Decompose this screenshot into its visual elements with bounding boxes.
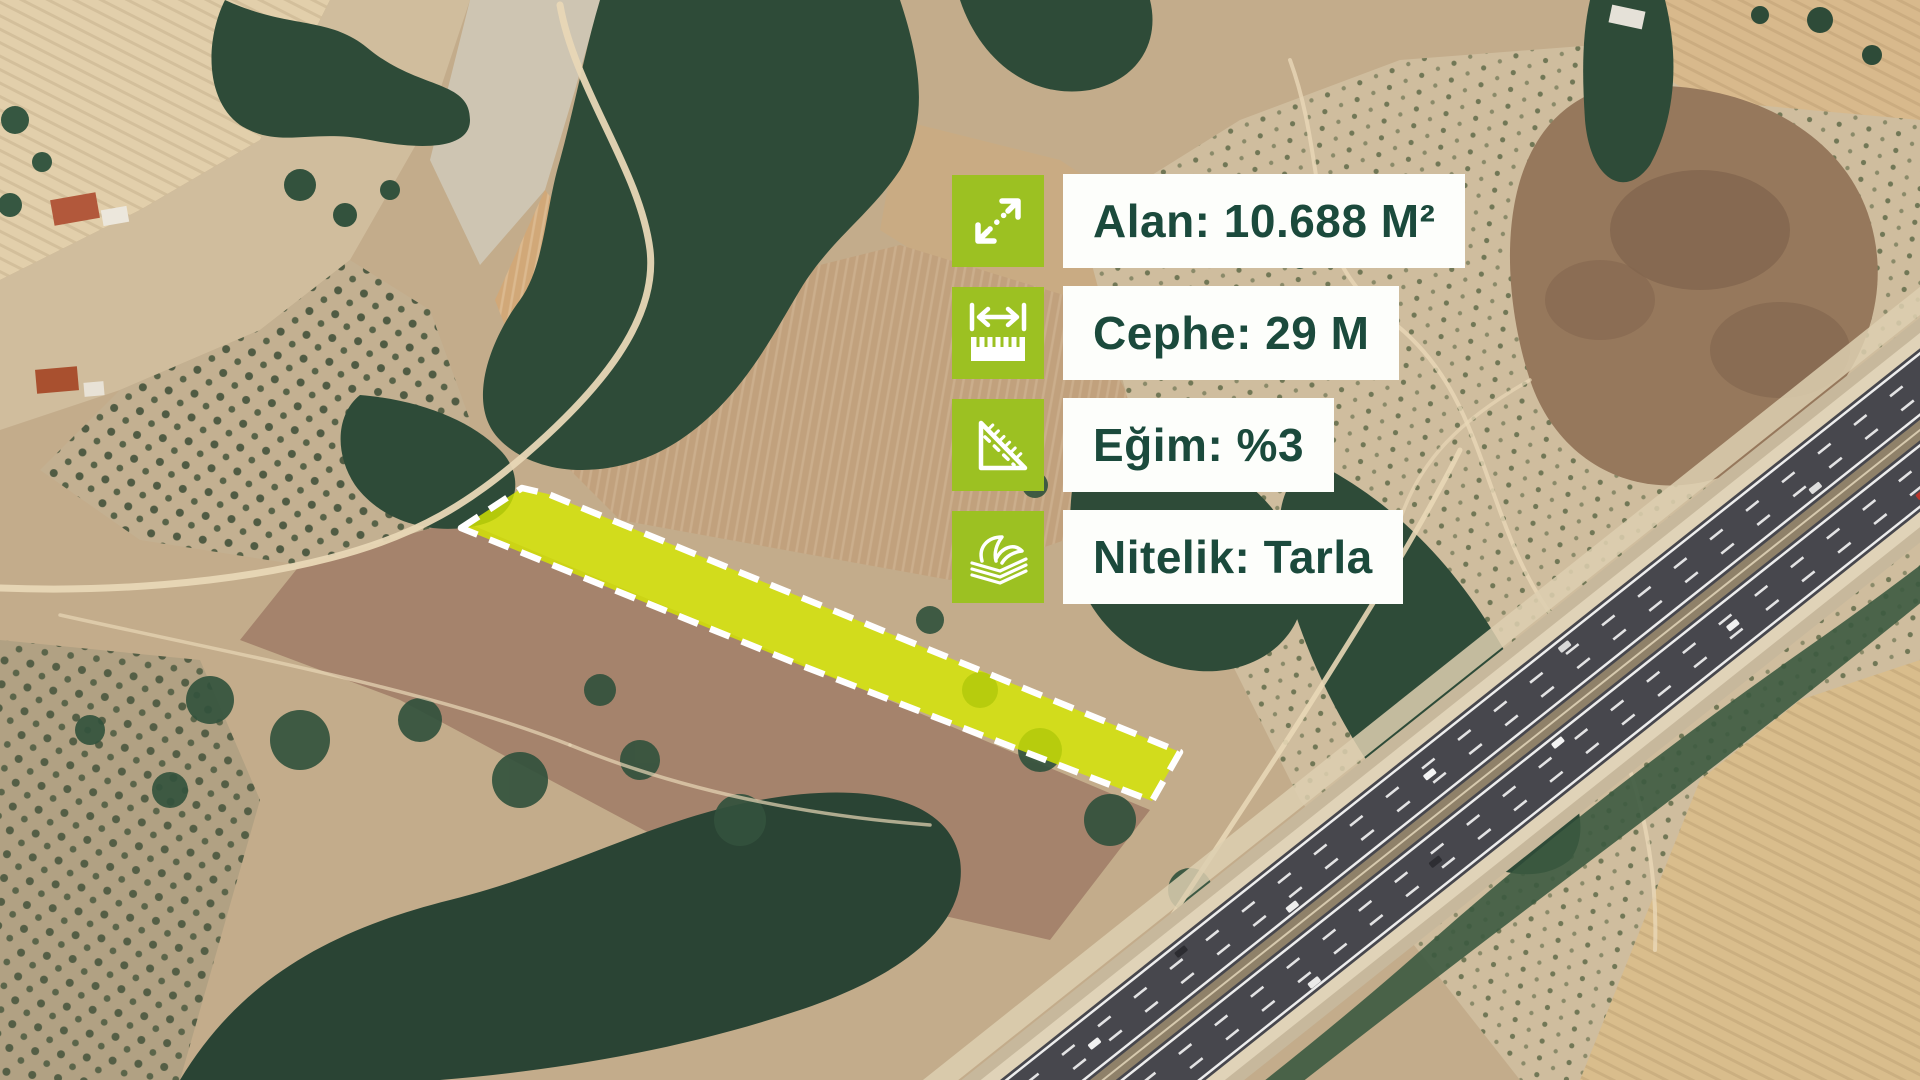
land-listing-image: Alan: 10.688 M² Cep <box>0 0 1920 1080</box>
area-label: Alan: 10.688 M² <box>1063 174 1465 268</box>
area-icon <box>952 175 1044 267</box>
frontage-icon <box>952 287 1044 379</box>
frontage-label: Cephe: 29 M <box>1063 286 1399 380</box>
slope-icon <box>952 399 1044 491</box>
info-row-frontage: Cephe: 29 M <box>952 287 1399 380</box>
info-panel: Alan: 10.688 M² Cep <box>952 175 1552 615</box>
info-row-attribute: Nitelik: Tarla <box>952 511 1403 604</box>
info-row-area: Alan: 10.688 M² <box>952 175 1465 268</box>
attribute-label: Nitelik: Tarla <box>1063 510 1403 604</box>
info-row-slope: Eğim: %3 <box>952 399 1334 492</box>
layers-icon <box>952 511 1044 603</box>
slope-label: Eğim: %3 <box>1063 398 1334 492</box>
